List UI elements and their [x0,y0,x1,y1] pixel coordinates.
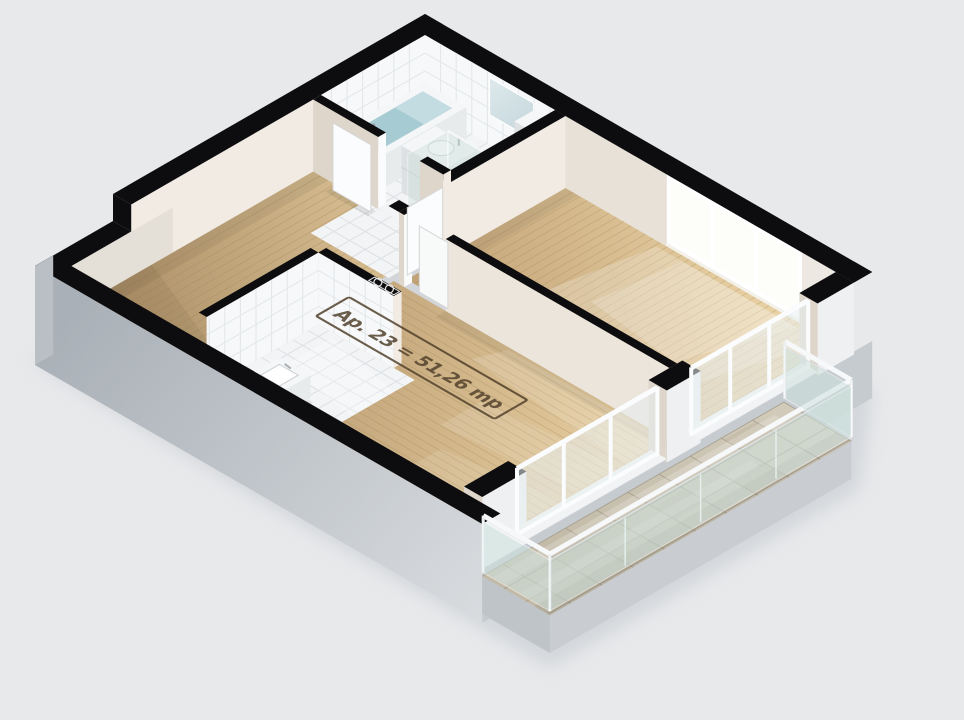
apartment-3d-floorplan-screenshot: Ap. 23 = 51,26 mp [0,0,964,720]
isometric-render-canvas: Ap. 23 = 51,26 mp [0,0,964,720]
